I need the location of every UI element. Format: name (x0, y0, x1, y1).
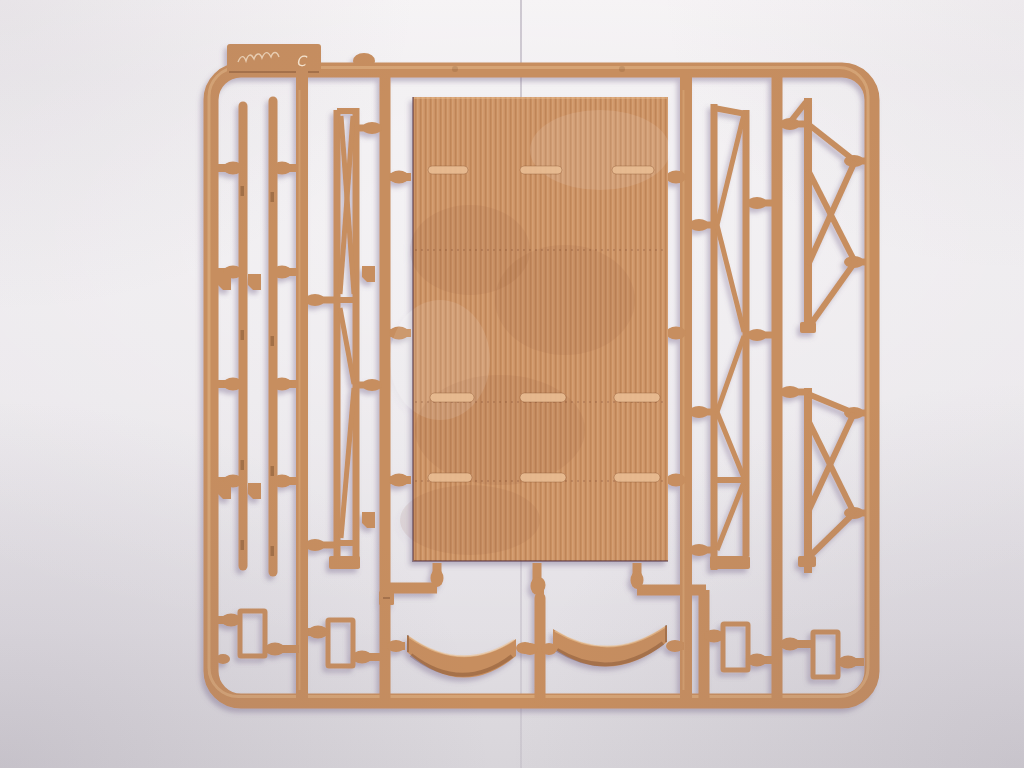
sprue-photo: C (0, 0, 1024, 768)
sprue-id-tab: C (227, 44, 321, 73)
part-long-post-2 (271, 101, 275, 572)
part-tilt-end-right (553, 625, 667, 667)
part-window-frame-3 (723, 624, 748, 670)
photo-background: C (0, 0, 1024, 768)
runner-number-tag (379, 591, 394, 605)
part-window-frame-1 (240, 611, 265, 656)
part-xbrace-upper (791, 98, 855, 333)
part-ribbed-panel (390, 97, 670, 561)
part-tilt-end-left (407, 635, 516, 678)
part-truss-left (329, 108, 360, 569)
part-truss-right (710, 104, 750, 570)
part-window-frame-2 (328, 620, 353, 666)
part-long-post-1 (241, 106, 245, 566)
sprue: C (209, 44, 872, 701)
part-window-frame-4 (813, 632, 838, 677)
